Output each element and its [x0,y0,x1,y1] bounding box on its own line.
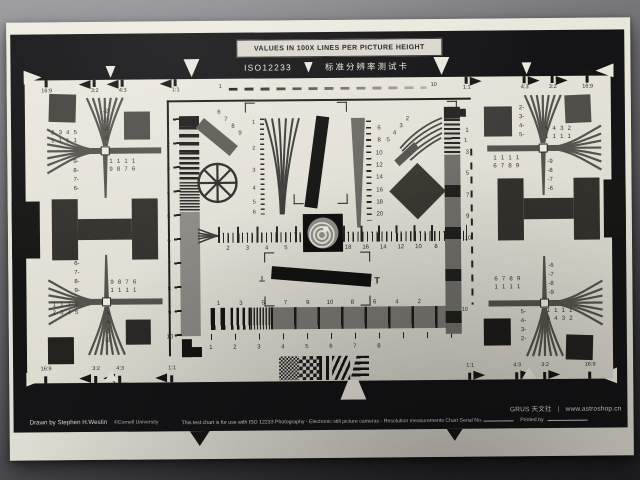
aspect-tick [174,79,177,86]
title-triangle-icon [304,62,313,73]
aspect-tick [121,80,124,87]
margin-triangle-icon [190,431,210,446]
credit-org: ©Cornell University [114,419,159,425]
star-scale: 1 1 1 1 2 3 4 5 [53,302,95,317]
banner-box: VALUES IN 100X LINES PER PICTURE HEIGHT [236,38,442,58]
gray-square [484,106,512,136]
banner-text: VALUES IN 100X LINES PER PICTURE HEIGHT [254,44,425,52]
star-scale: 2 3 4 5 1 1 1 1 [51,130,93,145]
gray-square [126,319,151,344]
sweep-stripes-mid [231,308,251,330]
right-h-shape [524,198,574,219]
left-strip-seg [179,116,199,126]
photo-background: VALUES IN 100X LINES PER PICTURE HEIGHT … [0,0,640,480]
aspect-label: 3:2 [540,85,566,91]
gray-square [566,334,594,360]
aspect-tick [588,372,591,379]
wedge-num: 3 [252,169,255,175]
star-scale: 5 4 3 2 1 1 1 1 [545,126,587,141]
brand-name: GRUS 天文社 [510,406,552,413]
printed-by-blank-line [548,415,588,421]
printed-by-label: Printed by [520,417,543,423]
aspect-tick [94,376,97,383]
star-scale: -6 -7 -8 -9 [548,262,562,298]
wedge-num: 4 [253,187,256,193]
star-scale: 6 7 8 9 1 1 1 1 [494,276,536,291]
right-h-shape [497,178,524,240]
spoke-wheel [195,161,239,205]
left-border-tab [12,201,40,258]
sweep-stripes-fine [251,307,271,329]
registration-mark [294,194,304,204]
left-h-shape [78,219,132,240]
aspect-label: 4:3 [110,89,136,95]
aspect-tick [586,76,589,83]
aspect-tick [44,376,47,383]
wedge-num: 2 [252,147,255,153]
gray-square [48,337,74,364]
sweep-stripes-coarse [211,308,231,330]
aspect-label: 3:2 [532,363,558,369]
aspect-label: 3:2 [83,367,109,373]
brand-url: www.astroshop.cn [566,405,622,412]
diagonal-stripes-patch [332,356,350,380]
zone-plate-rings [303,214,343,252]
cn-title: 标准分辨率测试卡 [325,60,409,73]
wedge-num: 5 [253,201,256,207]
wedge-num: 1 [252,121,255,127]
star-scale: 5- 4- 3- 2- [521,308,537,344]
left-strip-seg [179,126,199,152]
checkerboard-coarse [299,356,319,380]
star-scale: 1 1 1 1 6 7 8 9 [493,155,535,170]
star-scale: 2- 3- 4- 5- [519,104,535,140]
registration-mark [360,252,370,262]
registration-mark [245,103,255,113]
aspect-tick [551,76,554,83]
aspect-tick [93,80,96,87]
aspect-tick [45,80,48,87]
gray-square [48,94,76,123]
right-strip-seg [444,155,462,334]
sweep-gray-bar [271,306,459,330]
aspect-tick [543,372,546,379]
chart-title-row: ISO12233 标准分辨率测试卡 [216,59,436,75]
iso12233-chart-sheet: VALUES IN 100X LINES PER PICTURE HEIGHT … [6,17,634,460]
aspect-label: 4:3 [504,363,530,369]
zone-plate [303,214,343,252]
aspect-label: 1:1 [159,366,185,372]
star-scale: -5 -4 -3 -2 [105,310,121,346]
aspect-label: 16:9 [577,363,603,369]
center-wedge-ticks [260,118,265,214]
gray-square [484,318,511,345]
right-dashed-top-label: 1 [464,139,467,145]
checkerboard-fine [279,356,299,380]
hruler-fan [196,227,220,245]
margin-triangle-icon [447,429,463,441]
dash-scale-label: 10 [431,83,437,89]
gray-square [564,94,591,123]
tbar-right-mark: T [374,276,380,285]
right-strip-seg [444,119,460,155]
aspect-label: 4:3 [512,85,538,91]
star-scale: 1 1 1 1 5 4 3 2 [547,308,589,323]
star-scale: -2 -3 -4 -5 [103,108,119,144]
vertical-bars-patch [319,356,332,380]
iso-title: ISO12233 [244,62,292,72]
aspect-tick [465,77,468,84]
registration-mark [338,194,348,204]
brand-line: GRUS 天文社 | www.astroshop.cn [439,402,621,414]
aspect-tick [515,372,518,379]
dash-scale-label: 1 [219,85,222,91]
right-border-tab [603,179,626,237]
registration-mark [337,102,347,112]
tbar-left-mark: ⊥ [258,275,265,283]
aspect-label: 16:9 [33,367,59,373]
aspect-label: 3:2 [82,89,108,95]
aspect-label: 16:9 [575,85,601,91]
strip-foot [188,347,202,357]
registration-mark [264,252,274,262]
aspect-tick [468,373,471,380]
star-scale: 9 8 7 6 1 1 1 1 [110,279,152,294]
brand-separator: | [558,406,560,413]
aspect-tick [118,376,121,383]
aspect-label: 1:1 [457,364,483,370]
aspect-tick [170,375,173,382]
gray-square [124,111,150,139]
registration-mark [264,296,274,306]
left-h-shape [52,199,79,260]
aspect-label: 1:1 [163,88,189,94]
right-h-shape [573,178,600,240]
right-wedge-ticks [366,121,372,221]
star-scale: -9 -8 -7 -6 [547,158,561,194]
credit-text: Drawn by Stephen H.Westin [30,419,108,427]
wedge-num: 6 [253,211,256,217]
credit-line: Drawn by Stephen H.Westin ©Cornell Unive… [30,418,159,426]
right-dashed-bottom-label: 10 [462,308,468,314]
star-scale: 9- 8- 7- 6- [73,158,87,194]
star-scale: 6- 7- 8- 9- [74,260,88,296]
aspect-tick [523,76,526,83]
left-h-shape [132,198,159,259]
hruler-ticks-left [218,226,303,243]
registration-mark [360,296,370,306]
serial-blank-line [484,415,514,421]
aspect-label: 1:1 [454,86,480,92]
star-scale: 1 1 1 1 9 8 7 6 [109,158,151,173]
right-strip-arm [457,109,466,117]
